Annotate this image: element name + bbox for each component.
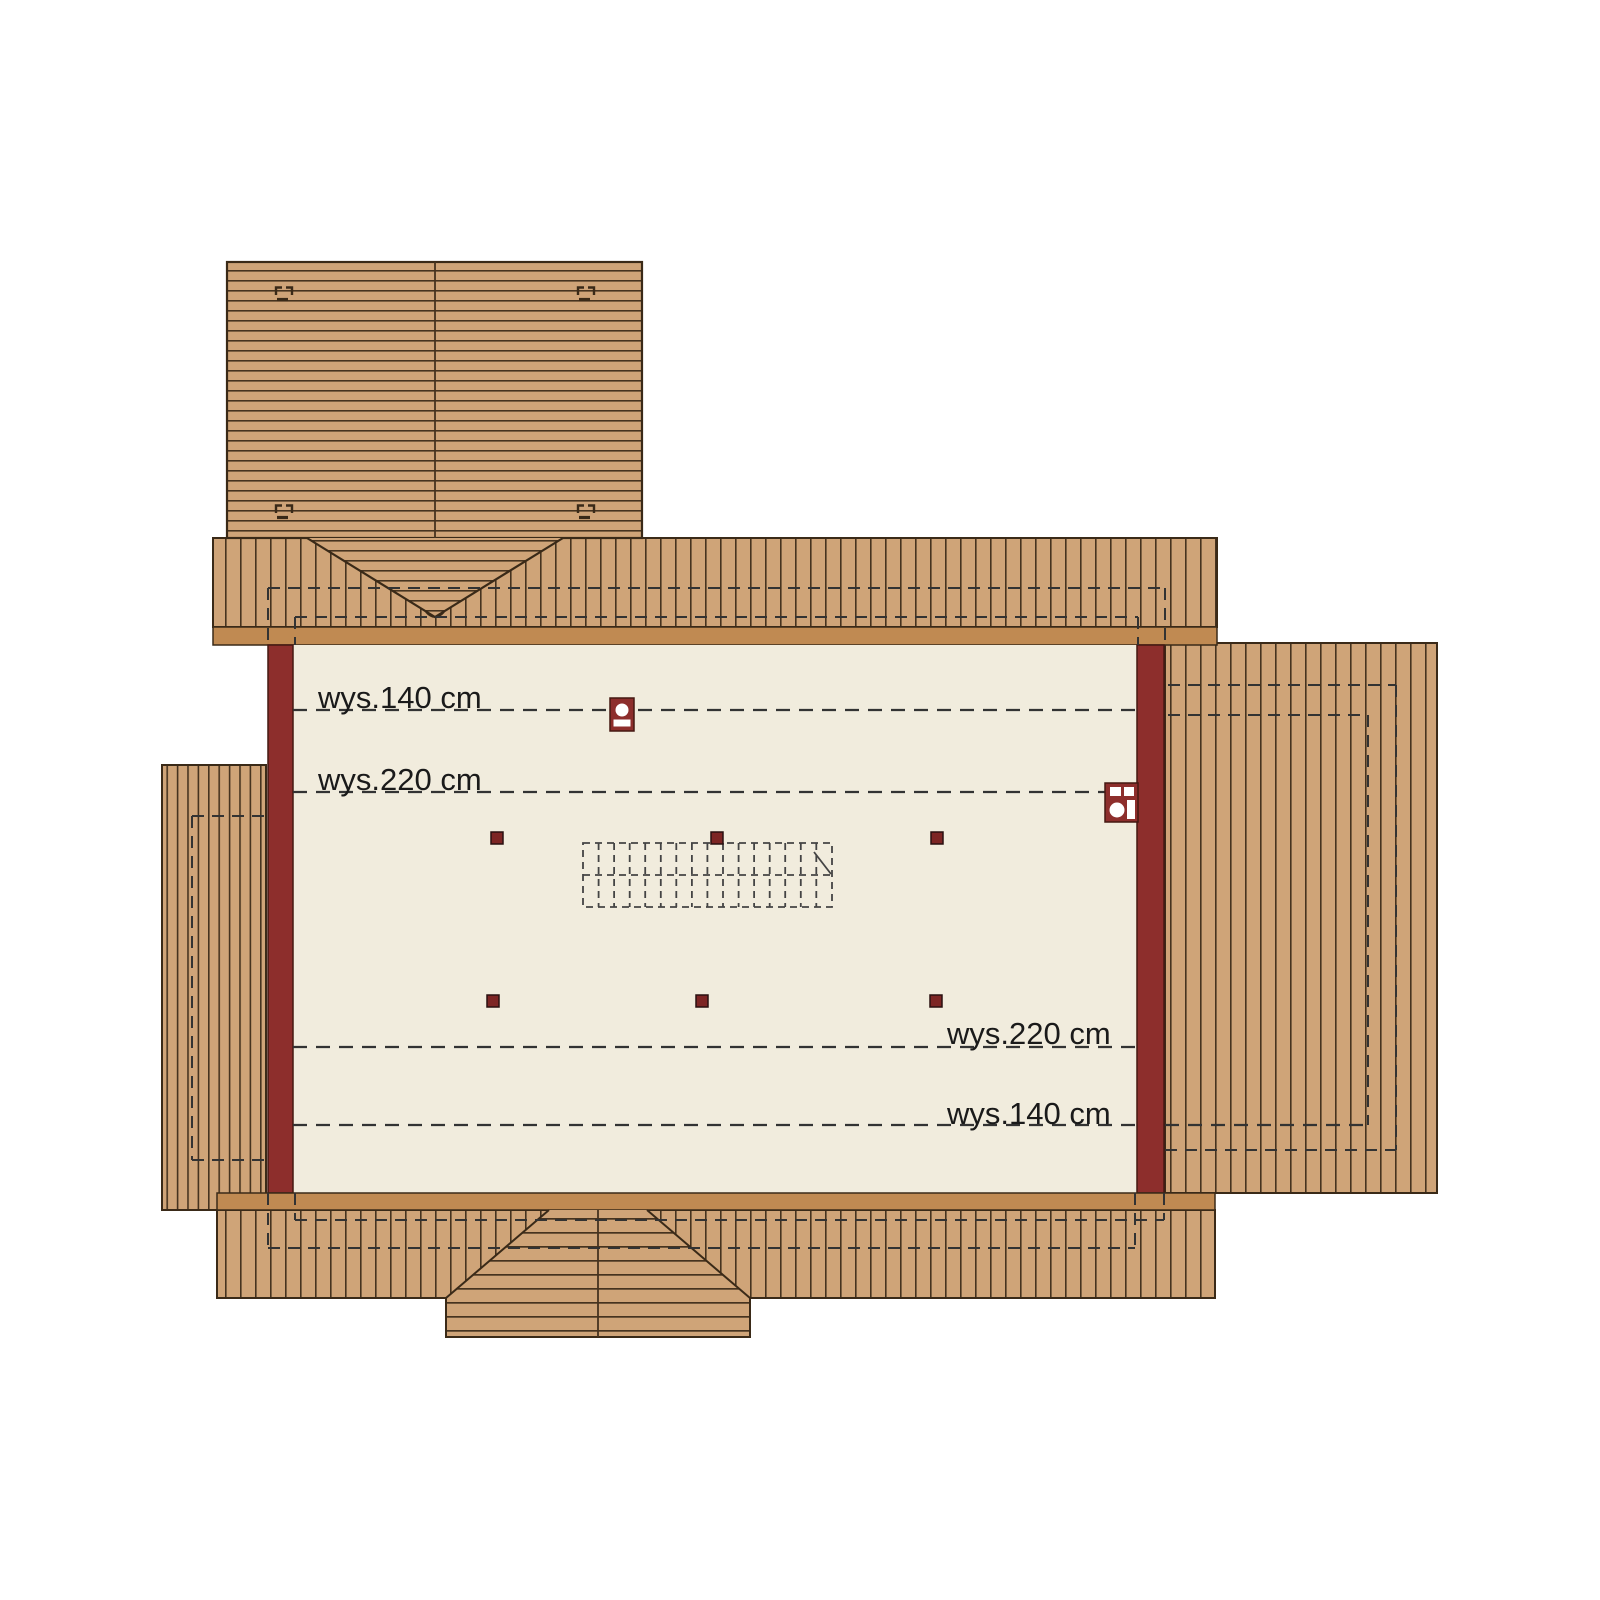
chimney-flue [616, 704, 629, 717]
post [711, 832, 723, 844]
ventilation-chimney [1105, 783, 1138, 822]
left-roof [162, 765, 266, 1210]
post [491, 832, 503, 844]
post [930, 995, 942, 1007]
vent-flue [1127, 800, 1135, 819]
floor-plan-drawing: wys.140 cm wys.220 cm wys.220 cm wys.140… [0, 0, 1600, 1600]
label-wys-140-top: wys.140 cm [317, 680, 482, 715]
upper-terrace-deck [227, 262, 642, 538]
chimney-vent [614, 720, 631, 727]
post [487, 995, 499, 1007]
vent-flue [1110, 803, 1125, 818]
chimney [610, 698, 634, 731]
vent-flue [1124, 787, 1134, 796]
top-eave-band [213, 627, 1217, 645]
attic-plan-canvas: wys.140 cm wys.220 cm wys.220 cm wys.140… [0, 0, 1600, 1600]
left-wall [268, 645, 293, 1193]
right-wall [1137, 645, 1164, 1193]
label-wys-220-bottom: wys.220 cm [946, 1016, 1111, 1051]
label-wys-140-bottom: wys.140 cm [946, 1096, 1111, 1131]
bottom-eave-band [217, 1193, 1215, 1210]
post [696, 995, 708, 1007]
post [931, 832, 943, 844]
vent-flue [1110, 787, 1121, 796]
label-wys-220-top: wys.220 cm [317, 762, 482, 797]
